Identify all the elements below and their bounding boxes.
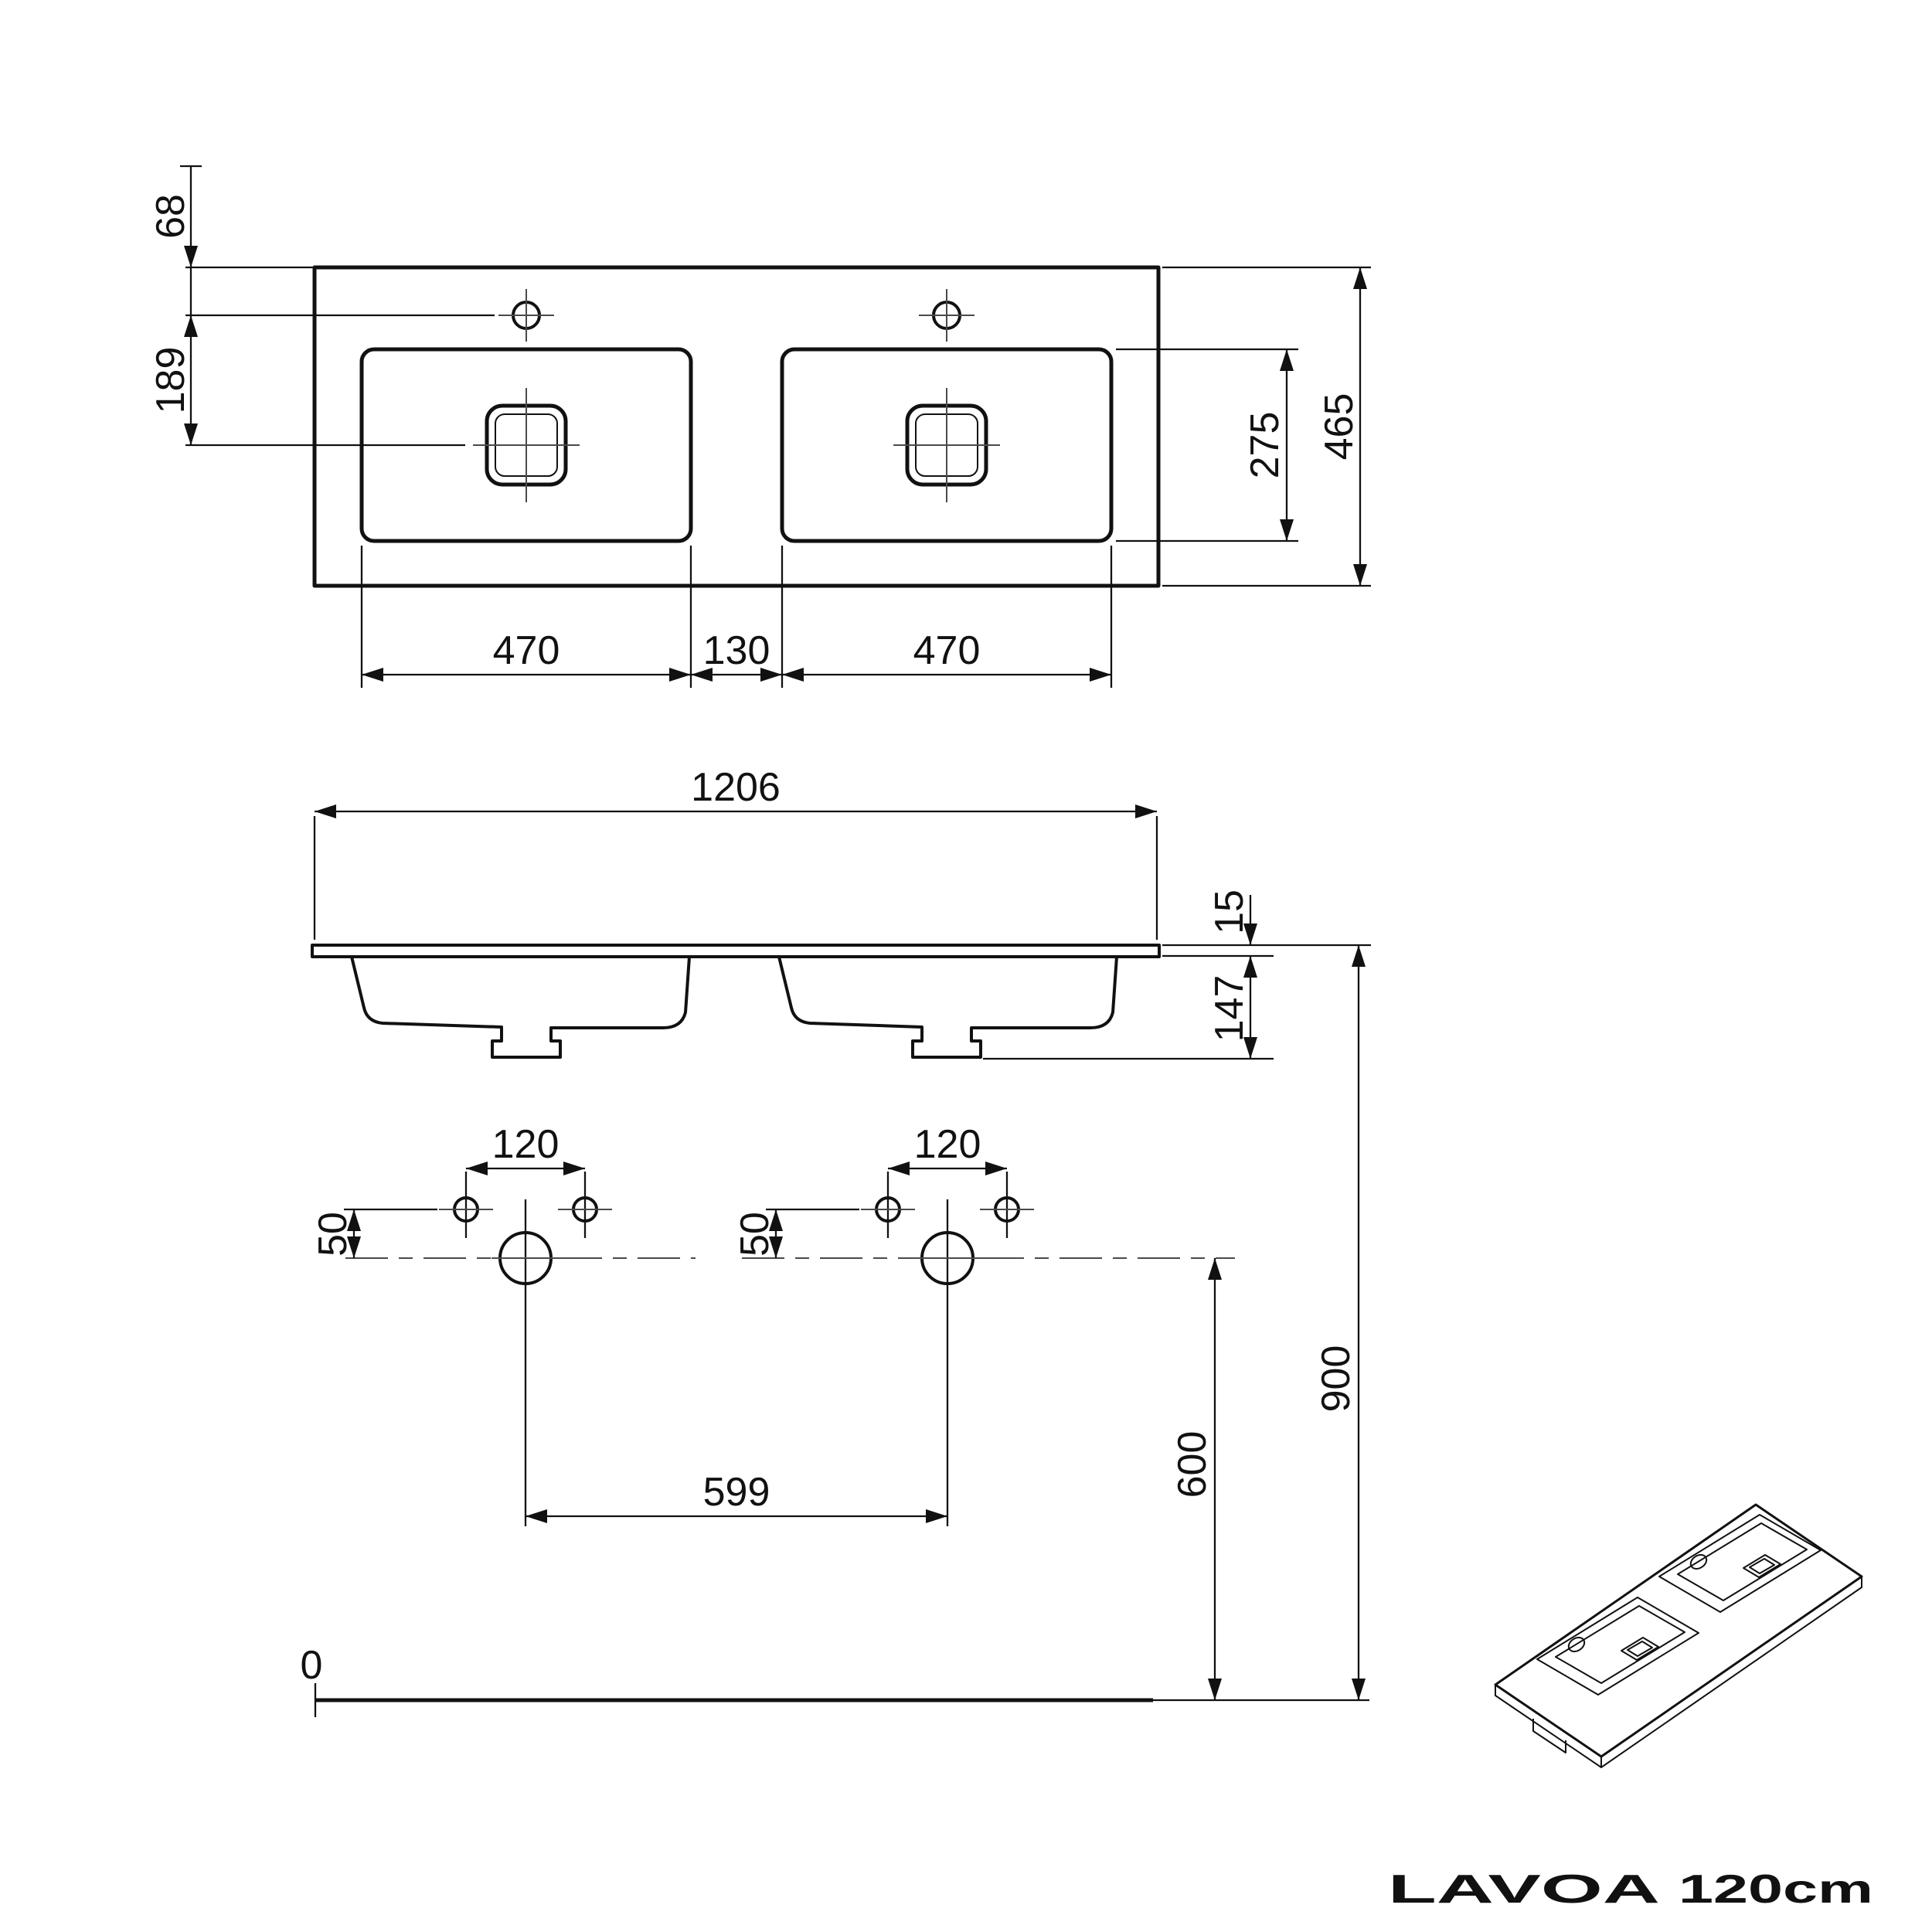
dim-thickness-and-depth: 15 147 bbox=[983, 889, 1371, 1059]
dim-label-599: 599 bbox=[703, 1470, 770, 1515]
drawing-page: 68 189 470 130 470 bbox=[0, 0, 1932, 1932]
dim-label-147: 147 bbox=[1207, 975, 1252, 1043]
dim-label-1206: 1206 bbox=[691, 765, 781, 810]
template-left-group: 120 50 bbox=[311, 1122, 696, 1526]
dim-depths: 275 465 bbox=[1116, 267, 1371, 586]
title-size: 120cm bbox=[1679, 1867, 1873, 1912]
dim-label-465: 465 bbox=[1317, 393, 1362, 461]
dim-label-600: 600 bbox=[1170, 1431, 1215, 1498]
dim-label-470-right: 470 bbox=[913, 628, 981, 673]
dim-label-50-left: 50 bbox=[311, 1212, 355, 1257]
dim-label-120-left: 120 bbox=[492, 1122, 560, 1167]
dim-label-189: 189 bbox=[148, 347, 193, 414]
dim-drain-spacing: 599 bbox=[526, 1470, 947, 1523]
iso-countertop-edge bbox=[1495, 1577, 1862, 1767]
template-right-group: 120 50 bbox=[733, 1122, 1235, 1526]
drain-left bbox=[473, 388, 580, 502]
basin-left-profile bbox=[352, 957, 689, 1057]
dim-label-900: 900 bbox=[1314, 1345, 1359, 1413]
dim-label-120-right: 120 bbox=[914, 1122, 981, 1167]
iso-basin-left bbox=[1537, 1597, 1699, 1695]
technical-drawing: 68 189 470 130 470 bbox=[0, 0, 1932, 1932]
dim-edge-to-faucet-and-drain: 68 189 bbox=[148, 166, 495, 445]
dim-total-width: 1206 bbox=[315, 765, 1157, 940]
title-brand: LAVOA bbox=[1388, 1867, 1660, 1912]
dim-label-68: 68 bbox=[148, 194, 193, 239]
basin-right-profile bbox=[779, 957, 1117, 1057]
product-title: LAVOA 120cm bbox=[1388, 1867, 1873, 1912]
dim-label-0: 0 bbox=[301, 1643, 323, 1688]
dim-label-50-right: 50 bbox=[733, 1212, 777, 1257]
drain-right bbox=[893, 388, 1000, 502]
countertop-slab bbox=[312, 945, 1159, 957]
dim-basin-widths: 470 130 470 bbox=[362, 546, 1111, 688]
plan-view: 68 189 470 130 470 bbox=[148, 166, 1371, 688]
iso-thumbnail bbox=[1495, 1505, 1862, 1767]
front-view: 1206 15 147 bbox=[312, 765, 1371, 1059]
dim-label-470-left: 470 bbox=[493, 628, 560, 673]
drilling-template-view: 120 50 120 bbox=[301, 945, 1369, 1717]
dim-label-15: 15 bbox=[1207, 889, 1252, 934]
dim-label-130: 130 bbox=[703, 628, 770, 673]
iso-basin-right bbox=[1659, 1515, 1821, 1612]
dim-label-275: 275 bbox=[1243, 412, 1287, 479]
